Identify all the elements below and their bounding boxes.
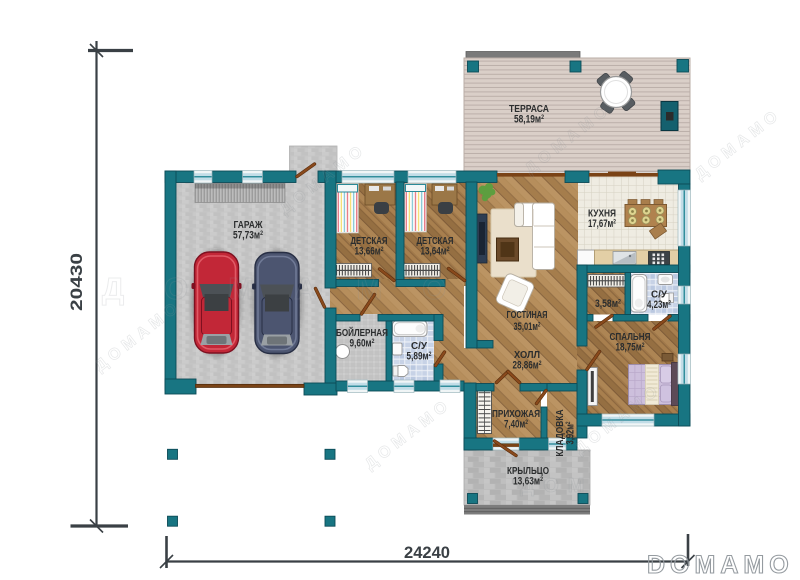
svg-text:13,64м2: 13,64м2 xyxy=(421,246,450,258)
svg-text:ДОМАМО: ДОМАМО xyxy=(102,271,486,306)
svg-text:3,58м2: 3,58м2 xyxy=(595,298,621,310)
svg-text:4,23м2: 4,23м2 xyxy=(647,299,671,311)
svg-text:58,19м2: 58,19м2 xyxy=(514,114,544,126)
svg-text:DOMAMO: DOMAMO xyxy=(647,551,794,579)
svg-text:13,66м2: 13,66м2 xyxy=(355,246,384,258)
svg-text:57,73м2: 57,73м2 xyxy=(233,230,263,242)
svg-text:7,40м2: 7,40м2 xyxy=(504,419,528,431)
svg-text:18,75м2: 18,75м2 xyxy=(616,342,645,354)
svg-text:3,92м2: 3,92м2 xyxy=(565,421,577,444)
svg-text:ДОМ: ДОМ xyxy=(520,475,593,497)
svg-text:28,86м2: 28,86м2 xyxy=(513,360,542,372)
svg-text:5,89м2: 5,89м2 xyxy=(407,351,432,363)
svg-text:9,60м2: 9,60м2 xyxy=(350,338,375,350)
svg-text:20430: 20430 xyxy=(67,253,86,311)
svg-text:ГОСТИНАЯ: ГОСТИНАЯ xyxy=(507,309,548,321)
svg-text:35,01м2: 35,01м2 xyxy=(514,321,541,333)
svg-text:24240: 24240 xyxy=(404,543,450,562)
svg-text:17,67м2: 17,67м2 xyxy=(588,218,616,230)
